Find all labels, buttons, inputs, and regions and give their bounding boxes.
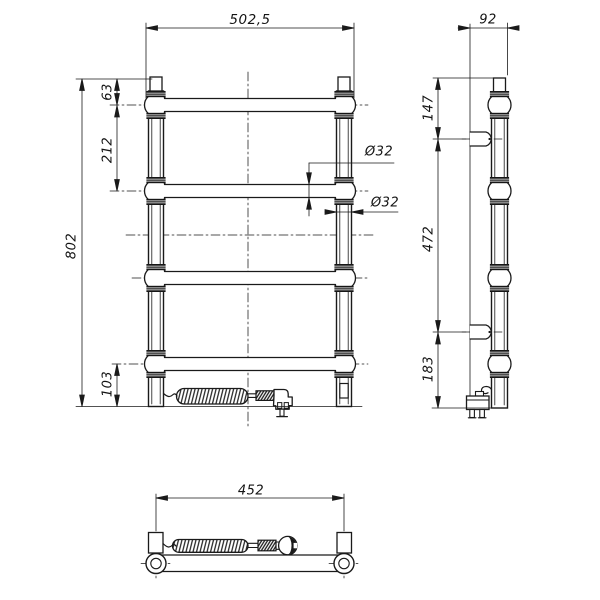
dim-label-depth: 92 bbox=[479, 13, 497, 28]
towel-rail-technical-drawing: 502,5 802 63 212 103 Ø32 Ø32 92 147 472 … bbox=[0, 0, 600, 600]
drawing-canvas bbox=[0, 0, 600, 600]
dim-label-bracket-spacing: 472 bbox=[422, 226, 437, 252]
plug-pin bbox=[280, 409, 284, 416]
dim-label-top-bracket: 147 bbox=[422, 95, 437, 121]
dim-label-overall-width: 502,5 bbox=[229, 12, 270, 28]
bottom-bar bbox=[160, 555, 340, 572]
power-cable-bottom bbox=[163, 536, 297, 554]
dim-label-bottom-offset: 103 bbox=[101, 371, 116, 397]
dim-label-bar-pitch: 212 bbox=[101, 137, 116, 163]
bottom-bracket-right bbox=[337, 533, 352, 554]
side-view bbox=[432, 23, 519, 418]
dim-bracket-offsets bbox=[432, 78, 496, 408]
side-post-top-cap bbox=[494, 78, 506, 92]
front-view bbox=[76, 23, 398, 428]
rung-3 bbox=[145, 264, 356, 292]
dim-label-overall-height: 802 bbox=[65, 233, 80, 259]
power-plug-front bbox=[274, 390, 293, 417]
rung-4 bbox=[145, 350, 356, 378]
cable-boot bbox=[256, 391, 274, 401]
dim-label-bar-diameter: Ø32 bbox=[365, 145, 393, 160]
dim-label-post-diameter: Ø32 bbox=[371, 196, 399, 211]
right-post-top-cap bbox=[338, 77, 350, 91]
power-cable-front bbox=[164, 389, 293, 417]
bottom-view bbox=[141, 494, 359, 579]
rungs bbox=[145, 91, 356, 378]
dim-label-top-bar-offset: 63 bbox=[101, 83, 116, 101]
dim-overall-width bbox=[146, 23, 354, 98]
heating-element-window bbox=[340, 384, 348, 399]
bottom-bracket-left bbox=[149, 533, 164, 554]
power-plug-bottom bbox=[276, 536, 297, 554]
dim-label-mounting-width: 452 bbox=[238, 484, 264, 499]
post-sections bbox=[146, 554, 354, 574]
dim-label-bottom-bracket: 183 bbox=[422, 356, 437, 382]
dim-depth bbox=[458, 23, 519, 75]
side-post bbox=[488, 78, 511, 408]
dim-mounting-width bbox=[156, 494, 344, 531]
rung-2 bbox=[145, 177, 356, 205]
rung-1 bbox=[145, 91, 356, 119]
